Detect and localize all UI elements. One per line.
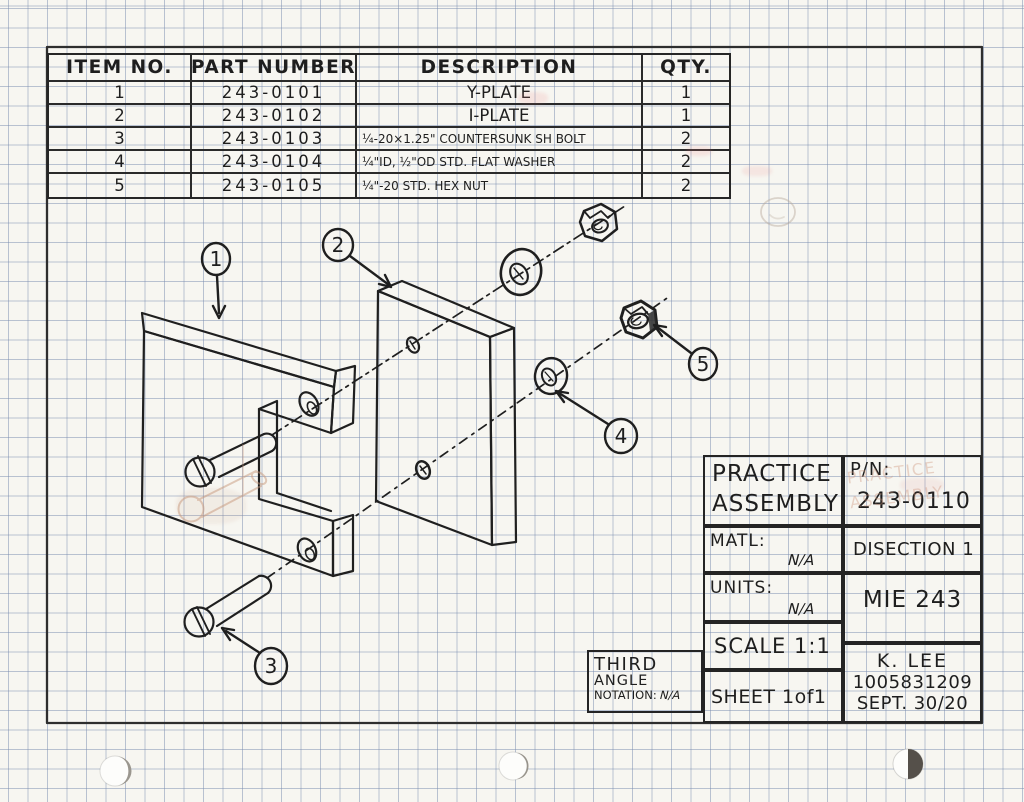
pencil-ghost-circle bbox=[761, 198, 795, 226]
table-row-1-item: 1 bbox=[49, 82, 192, 105]
titleblock-sheet: SHEET 1of1 bbox=[703, 670, 843, 723]
pn-label: P/N: bbox=[850, 459, 890, 480]
table-row-1-part: 243-0101 bbox=[192, 82, 357, 105]
punch-holes bbox=[100, 749, 923, 786]
table-row-3-item: 3 bbox=[49, 128, 192, 151]
col-header-qty: QTY. bbox=[643, 55, 729, 82]
units-value: N/A bbox=[786, 600, 817, 618]
balloon-4-number: 4 bbox=[615, 424, 628, 448]
projection-line2: ANGLE bbox=[594, 673, 701, 689]
units-label: UNITS: bbox=[710, 578, 773, 598]
table-row-5-desc: ¼"-20 STD. HEX NUT bbox=[357, 174, 643, 197]
matl-label: MATL: bbox=[710, 531, 766, 551]
table-row-3-desc: ¼-20×1.25" COUNTERSUNK SH BOLT bbox=[357, 128, 643, 151]
i-plate-drawing bbox=[376, 281, 516, 545]
titleblock-material: MATL: N/A bbox=[703, 526, 843, 573]
titleblock-course: MIE 243 bbox=[843, 573, 982, 643]
table-row-4-desc: ¼"ID, ½"OD STD. FLAT WASHER bbox=[357, 151, 643, 174]
table-row-2-qty: 1 bbox=[643, 105, 729, 128]
author-name: K. LEE bbox=[845, 650, 980, 672]
bolt-1-drawing bbox=[186, 434, 277, 487]
titleblock-units: UNITS: N/A bbox=[703, 573, 843, 622]
projection-notation-box: THIRD ANGLE NOTATION:N/A bbox=[587, 650, 703, 713]
col-header-item-no: ITEM NO. bbox=[49, 55, 192, 82]
matl-value: N/A bbox=[786, 551, 817, 569]
projection-value: N/A bbox=[658, 688, 682, 702]
titleblock-drawing-title: PRACTICE ASSEMBLY bbox=[703, 455, 843, 526]
punch-hole-left bbox=[100, 756, 132, 786]
table-row-4-item: 4 bbox=[49, 151, 192, 174]
bolt-2-drawing bbox=[185, 576, 272, 637]
drawing-title-line1: PRACTICE bbox=[712, 460, 841, 490]
titleblock-part-number: P/N: 243-0110 bbox=[843, 455, 982, 526]
table-row-5-part: 243-0105 bbox=[192, 174, 357, 197]
drawing-title-line2: ASSEMBLY bbox=[712, 490, 841, 520]
projection-line1: THIRD bbox=[594, 654, 701, 675]
table-row-2-part: 243-0102 bbox=[192, 105, 357, 128]
col-header-part-number: PART NUMBER bbox=[192, 55, 357, 82]
table-row-2-item: 2 bbox=[49, 105, 192, 128]
balloon-1-number: 1 bbox=[210, 247, 223, 271]
hex-nut-2-drawing bbox=[621, 301, 657, 338]
table-row-5-qty: 2 bbox=[643, 174, 729, 197]
table-row-4-part: 243-0104 bbox=[192, 151, 357, 174]
titleblock-scale: SCALE 1:1 bbox=[703, 622, 843, 670]
student-id: 1005831209 bbox=[845, 672, 980, 693]
titleblock-section: DISECTION 1 bbox=[843, 526, 982, 573]
y-plate-drawing bbox=[142, 313, 355, 576]
drawing-sheet: 1 2 3 4 5 ITEM NO. PART NUMBER DESCRI bbox=[0, 0, 1024, 802]
table-row-1-qty: 1 bbox=[643, 82, 729, 105]
parts-table: ITEM NO. PART NUMBER DESCRIPTION QTY. 1 … bbox=[47, 53, 731, 199]
punch-hole-center bbox=[499, 752, 529, 780]
table-row-1-desc: Y-PLATE bbox=[357, 82, 643, 105]
projection-line3: NOTATION:N/A bbox=[594, 688, 701, 702]
col-header-description: DESCRIPTION bbox=[357, 55, 643, 82]
table-row-3-part: 243-0103 bbox=[192, 128, 357, 151]
table-row-3-qty: 2 bbox=[643, 128, 729, 151]
washer-1-drawing bbox=[497, 245, 546, 298]
table-row-2-desc: I-PLATE bbox=[357, 105, 643, 128]
balloon-3-number: 3 bbox=[265, 654, 278, 678]
date: SEPT. 30/20 bbox=[845, 693, 980, 714]
table-row-4-qty: 2 bbox=[643, 151, 729, 174]
washer-2-drawing bbox=[533, 356, 570, 396]
balloon-2-number: 2 bbox=[332, 233, 345, 257]
pn-value: 243-0110 bbox=[857, 489, 971, 514]
balloon-5-number: 5 bbox=[697, 352, 710, 376]
titleblock-author: K. LEE 1005831209 SEPT. 30/20 bbox=[843, 643, 982, 723]
punch-hole-right bbox=[893, 749, 923, 779]
table-row-5-item: 5 bbox=[49, 174, 192, 197]
